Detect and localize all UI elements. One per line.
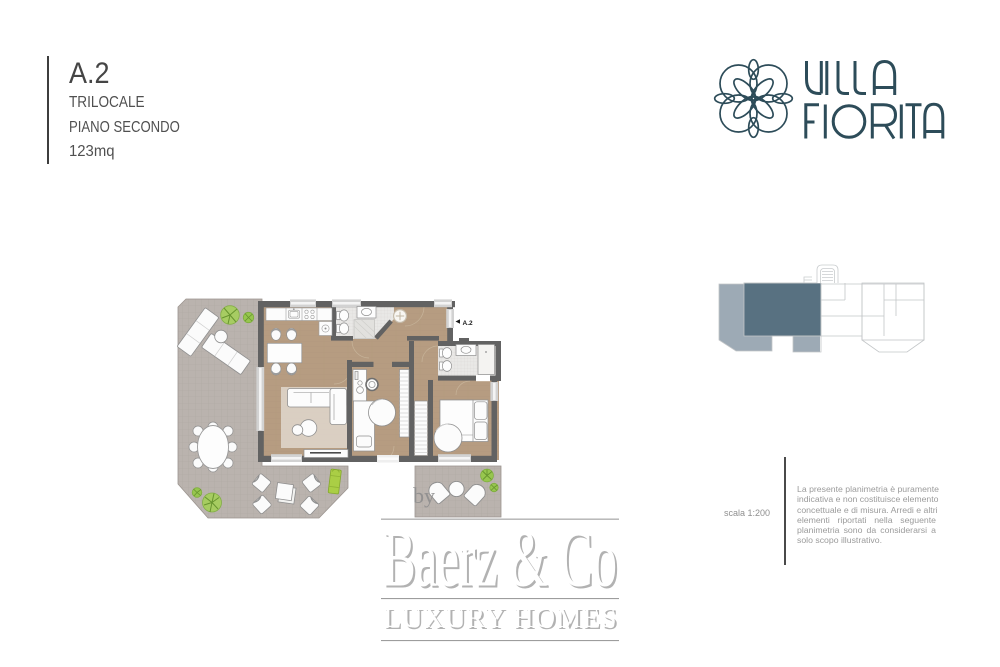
svg-text:Baerz & Co: Baerz & Co xyxy=(383,514,617,604)
svg-text:A.2: A.2 xyxy=(463,320,474,327)
